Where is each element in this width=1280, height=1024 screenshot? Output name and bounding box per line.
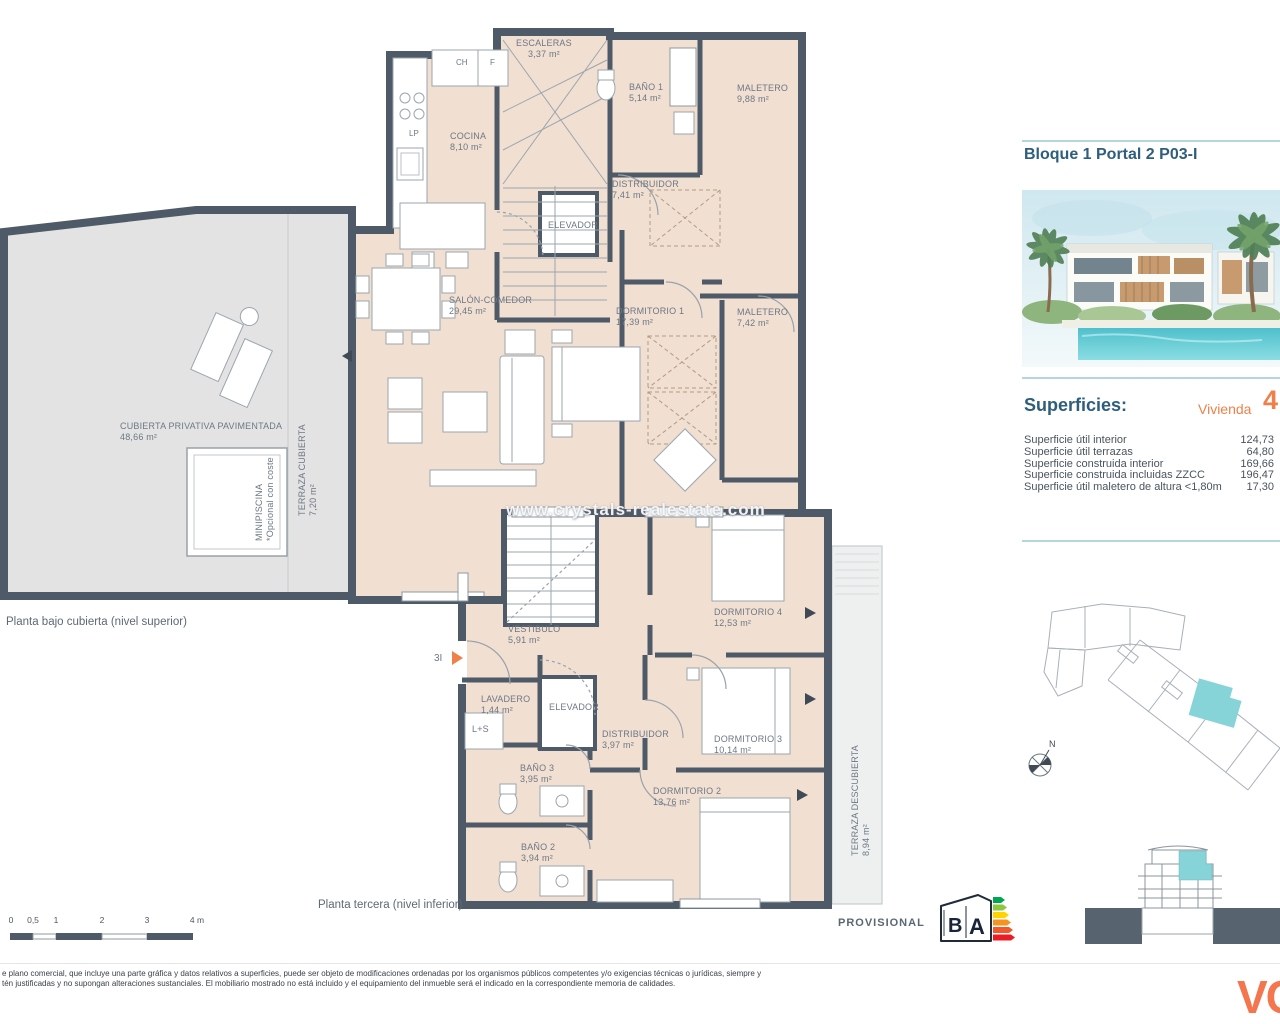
room-label-cocina: COCINA8,10 m²	[450, 131, 486, 152]
room-label-maletero-top: MALETERO9,88 m²	[737, 83, 788, 104]
appliance-f: F	[490, 58, 495, 67]
room-label-dormitorio3: DORMITORIO 310,14 m²	[714, 734, 782, 755]
svg-text:A: A	[969, 914, 985, 939]
room-label-salon: SALÓN-COMEDOR29,45 m²	[449, 295, 532, 316]
building-section	[1085, 846, 1280, 944]
upper-plan-caption: Planta bajo cubierta (nivel superior)	[6, 616, 187, 628]
highlighted-unit-section	[1179, 851, 1212, 880]
room-label-dormitorio4: DORMITORIO 412,53 m²	[714, 607, 782, 628]
room-label-distribuidor-inf: DISTRIBUIDOR3,97 m²	[602, 729, 669, 750]
room-label-elevador-sup: ELEVADOR	[548, 220, 598, 231]
room-label-terraza-cubierta: TERRAZA CUBIERTA7,20 m²	[297, 424, 318, 516]
room-label-terraza-descubierta: TERRAZA DESCUBIERTA8,94 m²	[850, 745, 871, 856]
appliance-lp: LP	[409, 129, 419, 138]
scale-bar	[10, 933, 193, 940]
svg-text:B: B	[948, 915, 962, 937]
room-label-minipiscina: MINIPISCINA*Opcional con coste	[254, 457, 275, 541]
room-label-maletero-mid: MALETERO7,42 m²	[737, 307, 788, 328]
floorplan-sheet: { "header": { "title": "Bloque 1 Portal …	[0, 0, 1280, 1024]
svg-text:N: N	[1049, 739, 1056, 749]
room-label-ls: L+S	[472, 724, 489, 735]
room-label-bano3: BAÑO 33,95 m²	[520, 763, 554, 784]
site-plan: N	[1029, 604, 1280, 790]
appliance-ch: CH	[456, 58, 468, 67]
room-label-lavadero: LAVADERO1,44 m²	[481, 694, 530, 715]
room-label-distribuidor-sup: DISTRIBUIDOR7,41 m²	[612, 179, 679, 200]
room-label-bano2: BAÑO 23,94 m²	[521, 842, 555, 863]
watermark: www.crystals-realestate.com	[506, 500, 766, 520]
room-label-dormitorio1: DORMITORIO 117,39 m²	[616, 306, 684, 327]
room-label-vestibulo: VESTIBULO5,91 m²	[508, 624, 560, 645]
room-label-elevador-inf: ELEVADOR	[549, 702, 599, 713]
compass-icon: N	[1029, 739, 1056, 776]
room-label-bano1: BAÑO 15,14 m²	[629, 82, 663, 103]
highlighted-unit	[1189, 678, 1245, 727]
room-label-cubierta: CUBIERTA PRIVATIVA PAVIMENTADA48,66 m²	[120, 421, 282, 442]
entrance-label: 3I	[434, 653, 442, 664]
energy-bars	[993, 897, 1015, 941]
lower-plan-caption: Planta tercera (nivel inferior)	[318, 899, 462, 911]
room-label-dormitorio2: DORMITORIO 213,76 m²	[653, 786, 721, 807]
energy-rating-icon: B A	[941, 895, 1015, 941]
room-label-escaleras: ESCALERAS3,37 m²	[516, 38, 572, 59]
